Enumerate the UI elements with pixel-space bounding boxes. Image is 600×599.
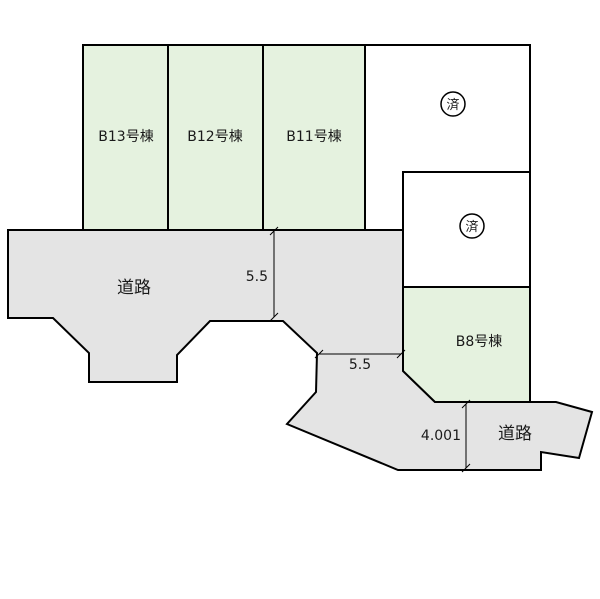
- lot-b8-label: B8号棟: [456, 334, 503, 350]
- road-label-bottom: 道路: [498, 424, 532, 444]
- lot-b12-label: B12号棟: [187, 129, 242, 145]
- dim-label-middle-horizontal: 5.5: [349, 357, 371, 373]
- lot-b11-label: B11号棟: [286, 129, 341, 145]
- lot-b13-label: B13号棟: [98, 129, 153, 145]
- dim-label-bottom-vertical: 4.001: [421, 428, 461, 444]
- road-label-left: 道路: [117, 278, 151, 298]
- sold-stamp-lower-text: 済: [465, 219, 478, 235]
- site-plan: B13号棟 B12号棟 B11号棟 B8号棟 済 済 道路 道路 5.5 5.5: [0, 0, 600, 599]
- sold-stamp-upper-text: 済: [446, 97, 459, 113]
- site-plan-drawing: B13号棟 B12号棟 B11号棟 B8号棟 済 済 道路 道路 5.5 5.5: [0, 0, 600, 599]
- dim-label-left-vertical: 5.5: [246, 269, 268, 285]
